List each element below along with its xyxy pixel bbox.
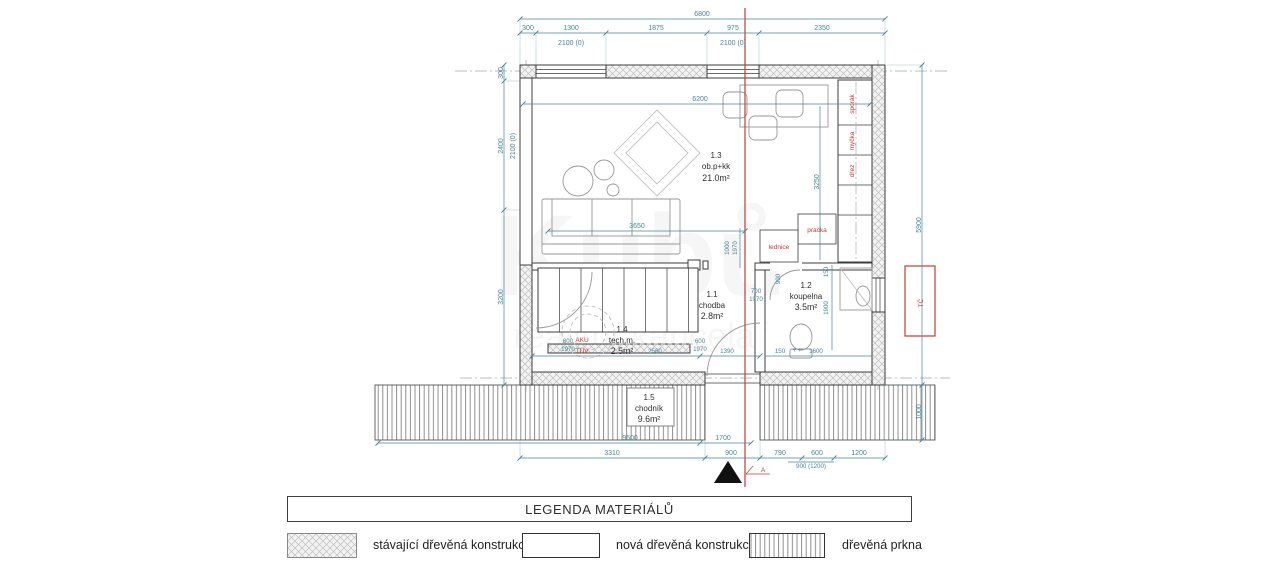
dim-6200: 6200 [692,96,708,103]
wall-top-right [759,65,872,78]
heat-pump-label: TČ [916,298,925,307]
dim-left-3: 3200 [498,289,505,305]
room-living-id: 1.3 [710,151,722,160]
wall-bottom-left [532,372,705,385]
dim-600: 600 [695,338,706,345]
fridge-label: lednice [769,244,790,251]
dim-1700: 1700 [715,435,731,442]
dim-1970b: 1970 [749,296,763,303]
dim-plus-marks: + + [793,347,802,354]
dim-3650: 3650 [629,223,645,230]
room-hall-area: 2.8m² [701,311,724,321]
desk-and-chairs [723,85,828,140]
section-marker-label: A [761,467,766,474]
dim-top-total: 6800 [694,11,710,18]
dim-b900: 900 [725,450,737,457]
dim-left-1: 300 [498,67,505,79]
dim-1600: 1600 [809,348,823,355]
dim-top-4: 975 [727,25,739,32]
window-top-right [707,65,759,78]
staircase [538,268,698,332]
room-bath-id: 1.2 [800,281,812,290]
dim-9500: 9500 [622,435,638,442]
dim-150b: 150 [775,348,786,355]
legend-label-planks: dřevěná prkna [842,533,922,558]
legend-title-box: LEGENDA MATERIÁLŮ [287,496,912,522]
dim-left-win: 2100 (0) [510,133,517,159]
dim-1000: 1000 [724,241,731,255]
washbasin [856,286,870,306]
dim-1970d: 1970 [693,346,707,353]
washer-label: pračka [807,227,827,234]
dim-top-3: 1875 [648,25,664,32]
coffee-table [563,160,619,196]
tuv-label: TÚV [576,346,590,355]
dim-1390: 1390 [720,348,734,355]
wall-bottom-right [760,372,872,385]
legend-swatch-planks [749,533,825,558]
dim-top-win2: 2100 (0) [720,40,746,47]
room-walk-id: 1.5 [643,393,655,402]
wall-top-corner [520,65,536,78]
dim-700: 700 [751,288,762,295]
deck-right [760,385,935,440]
room-walk-area: 9.6m² [638,414,661,424]
dim-top-1: 300 [522,25,534,32]
dim-right-2: 1000 [916,404,923,420]
dim-1970a: 1970 [732,241,739,255]
room-hall-name: chodba [699,301,726,310]
dim-2560: 2560 [648,348,662,355]
sink-label: dřez [849,165,856,178]
legend-label-new: nová dřevěná konstrukce [616,533,756,558]
dim-left-2: 2400 [498,138,505,154]
room-walk-name: chodník [635,404,664,413]
room-living-name: ob.p+kk [702,162,731,171]
wall-right [872,65,885,385]
entrance-threshold [705,374,760,383]
wall-left-lower [520,265,532,385]
legend-label-existing: stávající dřevěná konstrukce [373,533,531,558]
dim-top-win1: 2100 (0) [558,40,584,47]
room-tech-area: 2.5m² [611,346,634,356]
wall-top-mid [606,65,707,78]
bath-door-opening [770,262,802,271]
room-tech-id: 1.4 [616,325,628,334]
floorplan-page: Kubů realitní kancelář [0,0,1280,561]
legend-title: LEGENDA MATERIÁLŮ [525,502,674,517]
dim-3250: 3250 [814,174,821,190]
dim-800: 800 [563,338,574,345]
dim-3310: 3310 [604,450,620,457]
legend-swatch-existing [287,533,357,558]
dim-1200: 1200 [851,450,867,457]
dim-790: 790 [774,450,786,457]
wall-left-upper-new [520,78,532,265]
room-bath-area: 3.5m² [795,302,818,312]
dim-600b: 600 [811,450,823,457]
room-hall-id: 1.1 [706,290,718,299]
door-jamb-block-2 [703,261,708,269]
dim-900: 900 [775,273,782,284]
rug [614,110,700,196]
room-living-area: 21.0m² [702,173,729,183]
aku-label: AKU [575,337,589,344]
window-top-left [536,65,606,78]
dim-top-2: 1300 [563,25,579,32]
dim-1970c: 1970 [561,346,575,353]
wall-partition-vertical [755,270,765,372]
room-tech-name: tech.m. [609,336,635,345]
floor-plan-drawing: Kubů realitní kancelář [0,0,1280,561]
window-bath [872,278,885,312]
room-bath-name: koupelna [790,292,823,301]
legend-swatch-new [522,533,600,558]
dim-1900: 1900 [823,301,830,315]
dim-900-1200: 900 (1200) [796,463,826,470]
dim-150a: 150 [823,266,830,277]
entrance-arrow [714,461,742,483]
dim-right-1: 5900 [916,217,923,233]
stove-label: sporák [849,93,856,113]
dim-top-5: 2350 [814,25,830,32]
dishwasher-label: myčka [849,131,856,150]
